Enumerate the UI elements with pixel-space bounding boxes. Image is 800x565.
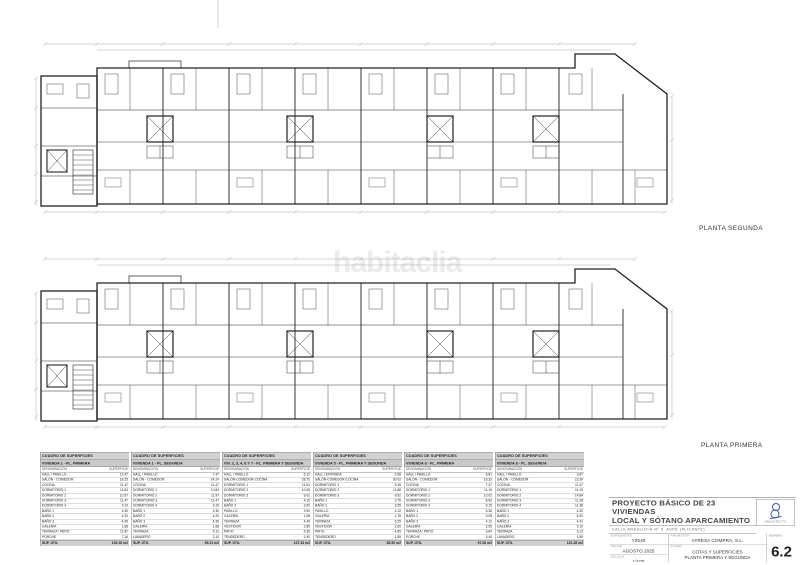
col-superficie: SUPERFICIE (564, 468, 583, 472)
surface-table: CUADRO DE SUPERFICIESVIV. 2, 3, 4, 6 Y 7… (222, 452, 311, 546)
room-area: 3.75 (395, 499, 401, 503)
room-area: 9.02 (304, 494, 310, 498)
room-name: BAÑO 3 (42, 520, 54, 524)
room-area: 9.92 (395, 494, 401, 498)
room-area: 5.12 (213, 530, 219, 534)
field-fecha: FECHA AGOSTO 2025 (609, 545, 668, 556)
project-address: CALLE ANDALUCÍA Nº 5. ASPE (ALICANTE) (609, 526, 756, 535)
room-area: 11.68 (393, 489, 401, 493)
room-name: COCINA (133, 483, 146, 487)
plan-label-primera: PLANTA PRIMERA (701, 442, 762, 449)
room-name: DORMITORIO 4 (406, 504, 430, 508)
room-area: 3.12 (577, 530, 583, 534)
plan-first-floor (34, 257, 674, 429)
room-name: BAÑO 3 (406, 520, 418, 524)
room-name: DORMITORIO 2 (42, 494, 66, 498)
architect-stamp: ARQUITECTO (756, 499, 795, 526)
room-name: BAÑO 1 (406, 509, 418, 513)
room-name: DORMITORIO 3 (133, 499, 157, 503)
col-superficie: SUPERFICIE (109, 468, 128, 472)
col-superficie: SUPERFICIE (382, 468, 401, 472)
room-area: 4.35 (213, 520, 219, 524)
table-subtitle: VIVIENDA 5 - PL. PRIMERA Y SEGUNDA (314, 460, 403, 467)
surface-table: CUADRO DE SUPERFICIESVIVIENDA 8 - PL. SE… (495, 452, 584, 546)
col-denominacion: DENOMINACIÓN (315, 468, 340, 472)
col-superficie: SUPERFICIE (473, 468, 492, 472)
room-area: 23.30 (575, 478, 583, 482)
room-name: DORMITORIO 3 (406, 499, 430, 503)
table-subtitle: VIVIENDA 8 - PL. SEGUNDA (496, 460, 585, 467)
col-denominacion: DENOMINACIÓN (42, 468, 67, 472)
room-area: 2.85 (304, 525, 310, 529)
col-denominacion: DENOMINACIÓN (133, 468, 158, 472)
col-denominacion: DENOMINACIÓN (224, 468, 249, 472)
table-title: CUADRO DE SUPERFICIES (41, 453, 130, 461)
room-area: 4.30 (577, 509, 583, 513)
room-name: PATIO (315, 530, 324, 534)
table-title: CUADRO DE SUPERFICIES (223, 453, 312, 461)
util-label: SUP. ÚTIL (133, 542, 149, 546)
room-name: PORCHE (42, 535, 56, 539)
util-value: 99.21 m2 (205, 542, 219, 546)
room-area: 4.41 (577, 520, 583, 524)
room-name: HALL / ENTRADA (315, 473, 342, 477)
room-area: 1.85 (395, 535, 401, 539)
table-footer-util: SUP. ÚTIL121.28 m2 (496, 540, 585, 546)
room-name: TERRAZA (315, 520, 330, 524)
room-area: 1.68 (213, 525, 219, 529)
architect-caption: ARQUITECTO (764, 520, 786, 523)
field-plano: PLANO COTAS Y SUPERFICIES PLANTA PRIMERA… (669, 545, 767, 562)
project-title: PROYECTO BÁSICO DE 23 VIVIENDAS LOCAL Y … (609, 498, 755, 526)
room-name: GALERÍA (224, 515, 238, 519)
room-area: 11.61 (302, 483, 310, 487)
room-area: 9.15 (213, 504, 219, 508)
room-name: DORMITORIO 1 (406, 489, 430, 493)
table-title: CUADRO DE SUPERFICIES (405, 453, 494, 461)
room-name: TERRAZA (133, 530, 148, 534)
room-area: 4.85 (395, 530, 401, 534)
room-name: DORMITORIO 3 (497, 499, 521, 503)
room-name: BAÑO 1 (315, 499, 327, 503)
room-area: 3.08 (486, 515, 492, 519)
room-name: GALERÍA (315, 515, 329, 519)
room-area: 1.78 (395, 515, 401, 519)
field-escala: ESCALA 1/100 (609, 555, 668, 562)
room-area: 5.28 (486, 509, 492, 513)
surface-table-inner: CUADRO DE SUPERFICIESVIV. 2, 3, 4, 6 Y 7… (222, 452, 311, 546)
room-area: 9.15 (486, 504, 492, 508)
room-area: 11.87 (120, 530, 128, 534)
room-name: BAÑO 2 (42, 515, 54, 519)
util-label: SUP. ÚTIL (497, 542, 513, 546)
room-area: 4.20 (122, 515, 128, 519)
surface-table-inner: CUADRO DE SUPERFICIESVIVIENDA 1 - PL. PR… (40, 452, 129, 546)
room-area: 11.47 (120, 499, 128, 503)
room-area: 4.30 (213, 509, 219, 513)
room-name: DORMITORIO 2 (406, 494, 430, 498)
room-name: DORMITORIO 1 (42, 489, 66, 493)
room-name: DORMITORIO 4 (133, 504, 157, 508)
room-name: GALERÍA (497, 525, 511, 529)
room-area: 3.58 (395, 473, 401, 477)
room-area: 18.25 (120, 478, 128, 482)
room-name: SALÓN - COMEDOR (497, 478, 528, 482)
table-footer-util: SUP. ÚTIL107.43 m2 (223, 540, 312, 546)
room-name: BAÑO 2 (315, 504, 327, 508)
room-area: 7.16 (122, 535, 128, 539)
room-area: 5.30 (304, 530, 310, 534)
room-name: TERRAZA / PATIO (406, 530, 433, 534)
room-area: 14.84 (575, 494, 583, 498)
room-name: DORMITORIO 4 (497, 504, 521, 508)
room-name: DORMITORIO 3 (42, 499, 66, 503)
room-area: 3.95 (395, 504, 401, 508)
col-superficie: SUPERFICIE (291, 468, 310, 472)
room-area: 9.64 (486, 530, 492, 534)
util-label: SUP. ÚTIL (42, 542, 58, 546)
table-subtitle: VIVIENDA 1 - PL. PRIMERA (41, 460, 130, 467)
room-name: PORCHE (406, 535, 420, 539)
room-name: SALÓN-COMEDOR-COCINA (315, 478, 358, 482)
room-name: HALL / PASILLO (406, 473, 430, 477)
util-value: 97.06 m2 (478, 542, 492, 546)
table-subtitle: VIVIENDA 8 - PL. PRIMERA (405, 460, 494, 467)
room-area: 10.05 (302, 489, 310, 493)
room-name: PASILLO (224, 509, 238, 513)
room-name: GALERÍA (42, 525, 56, 529)
room-area: 5.20 (577, 515, 583, 519)
room-name: COCINA (42, 483, 55, 487)
room-area: 6.81 (486, 473, 492, 477)
util-value: 121.28 m2 (567, 542, 583, 546)
surface-table: CUADRO DE SUPERFICIESVIVIENDA 8 - PL. PR… (404, 452, 493, 546)
room-area: 4.35 (122, 520, 128, 524)
room-name: TERRAZA / PATIO (42, 530, 69, 534)
room-name: BAÑO 1 (42, 509, 54, 513)
room-area: 4.12 (395, 509, 401, 513)
title-block: PROYECTO BÁSICO DE 23 VIVIENDAS LOCAL Y … (609, 497, 796, 562)
room-area: 4.15 (304, 499, 310, 503)
room-area: 11.19 (575, 489, 583, 493)
surface-table-inner: CUADRO DE SUPERFICIESVIVIENDA 8 - PL. SE… (495, 452, 584, 546)
table-footer-util: SUP. ÚTIL97.06 m2 (405, 540, 494, 546)
room-area: 1.95 (577, 535, 583, 539)
util-label: SUP. ÚTIL (224, 542, 240, 546)
room-area: 3.60 (304, 504, 310, 508)
table-subtitle: VIV. 2, 3, 4, 6 Y 7 - PL. PRIMERA Y SEGU… (223, 460, 312, 467)
room-area: 1.98 (304, 515, 310, 519)
project-title-line2: LOCAL Y SÓTANO APARCAMIENTO (612, 516, 752, 525)
room-area: 10.84 (211, 489, 219, 493)
room-name: SALÓN-COMEDOR-COCINA (224, 478, 267, 482)
room-name: DORMITORIO 1 (497, 489, 521, 493)
room-name: BAÑO 1 (497, 509, 509, 513)
room-name: BAÑO 2 (133, 515, 145, 519)
util-value: 105.18 m2 (112, 542, 128, 546)
field-promotor: PROMOTOR ATRESA COMPRA, S.L. (669, 534, 767, 545)
room-name: DORMITORIO 2 (497, 494, 521, 498)
room-name: DORMITORIO 2 (133, 494, 157, 498)
room-name: HALL / PASILLO (224, 473, 248, 477)
room-name: TENDEDERO (315, 535, 336, 539)
room-area: 7.47 (213, 473, 219, 477)
drawing-sheet: habitaclia (0, 0, 800, 565)
room-area: 9.45 (395, 483, 401, 487)
col-superficie: SUPERFICIE (200, 468, 219, 472)
surface-table: CUADRO DE SUPERFICIESVIVIENDA 1 - PL. SE… (131, 452, 220, 546)
room-name: DORMITORIO 4 (42, 504, 66, 508)
room-name: TERRAZA (497, 530, 512, 534)
room-area: 7.47 (486, 483, 492, 487)
room-area: 2.60 (395, 525, 401, 529)
col-denominacion: DENOMINACIÓN (406, 468, 431, 472)
room-name: LAVADERO (133, 535, 150, 539)
room-area: 8.92 (486, 499, 492, 503)
sheet-number: 6.2 (767, 538, 796, 562)
surface-table-inner: CUADRO DE SUPERFICIESVIVIENDA 5 - PL. PR… (313, 452, 402, 546)
util-value: 107.43 m2 (294, 542, 310, 546)
room-area: 4.30 (122, 509, 128, 513)
room-area: 4.45 (304, 520, 310, 524)
room-area: 2.10 (577, 525, 583, 529)
col-denominacion: DENOMINACIÓN (497, 468, 522, 472)
room-area: 2.10 (213, 535, 219, 539)
room-area: 11.19 (484, 489, 492, 493)
table-footer-util: SUP. ÚTIL105.18 m2 (41, 540, 130, 546)
room-name: BAÑO 2 (406, 515, 418, 519)
room-name: LAVADERO (497, 535, 514, 539)
room-area: 11.38 (575, 504, 583, 508)
room-area: 11.97 (211, 494, 219, 498)
plan-label-segunda: PLANTA SEGUNDA (699, 225, 763, 232)
room-area: 2.05 (486, 525, 492, 529)
table-footer-util: SUP. ÚTIL99.21 m2 (132, 540, 221, 546)
room-area: 4.20 (213, 515, 219, 519)
room-name: BAÑO 2 (224, 504, 236, 508)
room-name: COCINA (406, 483, 419, 487)
table-title: CUADRO DE SUPERFICIES (132, 453, 221, 461)
room-name: DORMITORIO 1 (133, 489, 157, 493)
room-name: COCINA (497, 483, 510, 487)
room-name: GALERÍA (406, 525, 420, 529)
room-area: 3.87 (577, 473, 583, 477)
room-name: DORMITORIO 3 (224, 494, 248, 498)
surface-table: CUADRO DE SUPERFICIESVIVIENDA 5 - PL. PR… (313, 452, 402, 546)
room-area: 11.47 (120, 483, 128, 487)
plan-second-floor (34, 42, 674, 214)
room-name: BAÑO 1 (224, 499, 236, 503)
room-area: 11.28 (575, 499, 583, 503)
util-label: SUP. ÚTIL (315, 542, 331, 546)
room-name: PASILLO (315, 509, 329, 513)
plano-line2: PLANTA PRIMERA Y SEGUNDA (671, 555, 765, 561)
util-value: 83.50 m2 (387, 542, 401, 546)
room-name: TERRAZA (224, 520, 239, 524)
field-expediente: EXPEDIENTE Y2540 (609, 534, 668, 545)
room-name: PATIO (224, 530, 233, 534)
room-area: 10.97 (120, 494, 128, 498)
room-name: BAÑO 1 (133, 509, 145, 513)
room-area: 10.02 (484, 494, 492, 498)
room-area: 11.47 (211, 483, 219, 487)
room-area: 9.10 (122, 504, 128, 508)
room-name: DORMITORIO 3 (315, 494, 339, 498)
room-area: 11.47 (211, 499, 219, 503)
surface-table-inner: CUADRO DE SUPERFICIESVIVIENDA 1 - PL. SE… (131, 452, 220, 546)
room-name: DORMITORIO 1 (224, 483, 248, 487)
room-area: 19.33 (484, 478, 492, 482)
room-name: TENDEDERO (224, 535, 245, 539)
room-area: 28.75 (302, 478, 310, 482)
room-name: DORMITORIO 1 (315, 483, 339, 487)
room-area: 3.40 (486, 535, 492, 539)
architect-logo-icon (768, 502, 783, 520)
room-name: HALL / PASILLO (497, 473, 521, 477)
table-title: CUADRO DE SUPERFICIES (314, 453, 403, 461)
room-area: 24.24 (211, 478, 219, 482)
table-subtitle: VIVIENDA 1 - PL. SEGUNDA (132, 460, 221, 467)
room-area: 1.90 (304, 535, 310, 539)
table-title: CUADRO DE SUPERFICIES (496, 453, 585, 461)
room-name: SALÓN - COMEDOR (406, 478, 437, 482)
room-area: 11.84 (120, 489, 128, 493)
room-name: HALL / PASILLO (42, 473, 66, 477)
room-name: BAÑO 3 (133, 520, 145, 524)
field-numero: NÚMERO 6.2 (767, 534, 796, 562)
surface-tables: CUADRO DE SUPERFICIESVIVIENDA 1 - PL. PR… (40, 452, 584, 546)
room-name: VESTIDOR (224, 525, 241, 529)
room-area: 1.68 (122, 525, 128, 529)
util-label: SUP. ÚTIL (406, 542, 422, 546)
room-name: SALÓN - COMEDOR (133, 478, 164, 482)
room-name: BAÑO 2 (497, 515, 509, 519)
room-name: DORMITORIO 2 (224, 489, 248, 493)
room-name: GALERÍA (133, 525, 147, 529)
room-area: 5.25 (395, 520, 401, 524)
table-footer-util: SUP. ÚTIL83.50 m2 (314, 540, 403, 546)
surface-table: CUADRO DE SUPERFICIESVIVIENDA 1 - PL. PR… (40, 452, 129, 546)
room-area: 3.90 (304, 509, 310, 513)
room-area: 6.12 (304, 473, 310, 477)
room-area: 30.02 (393, 478, 401, 482)
room-name: HALL / PASILLO (133, 473, 157, 477)
room-name: BAÑO 3 (497, 520, 509, 524)
room-name: VESTIDOR (315, 525, 332, 529)
room-name: DORMITORIO 2 (315, 489, 339, 493)
surface-table-inner: CUADRO DE SUPERFICIESVIVIENDA 8 - PL. PR… (404, 452, 493, 546)
titleblock-fields: EXPEDIENTE Y2540 FECHA AGOSTO 2025 ESCAL… (609, 534, 796, 562)
room-area: 11.47 (575, 483, 583, 487)
room-area: 4.12 (486, 520, 492, 524)
room-area: 12.47 (120, 473, 128, 477)
room-name: SALÓN - COMEDOR (42, 478, 73, 482)
project-title-line1: PROYECTO BÁSICO DE 23 VIVIENDAS (612, 499, 752, 516)
floorplans-svg (0, 0, 800, 450)
